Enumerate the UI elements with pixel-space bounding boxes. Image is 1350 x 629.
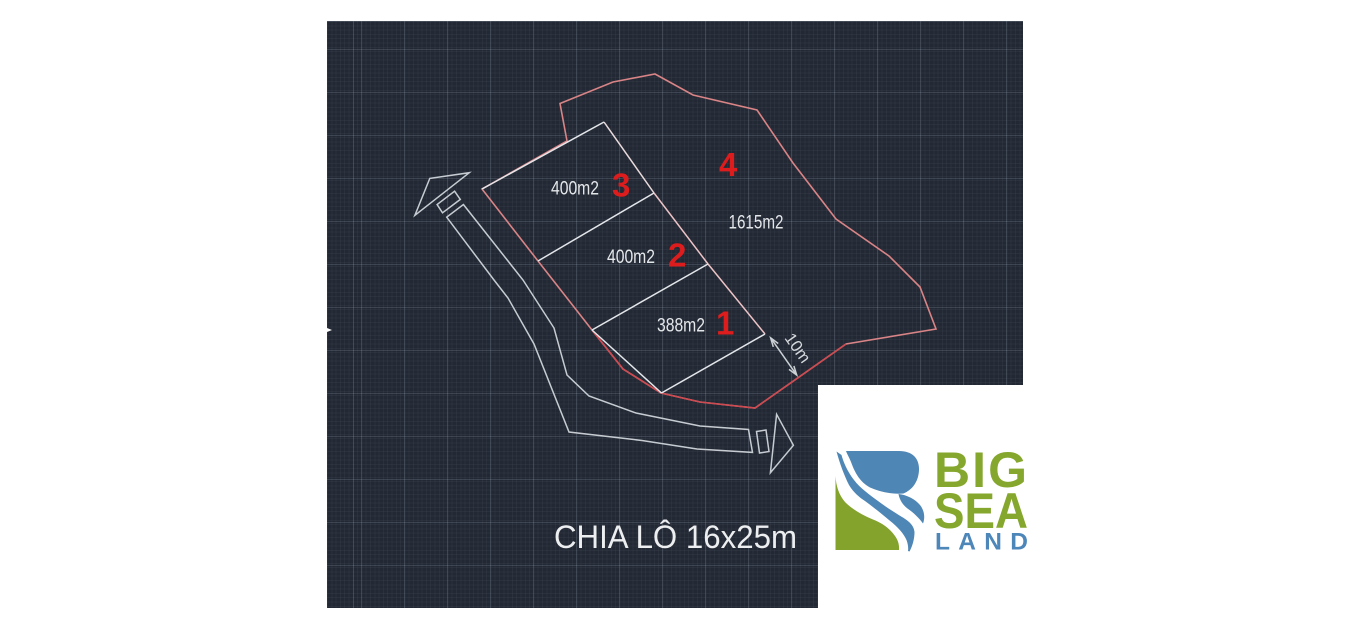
svg-text:10m: 10m <box>781 330 814 367</box>
svg-text:400m2: 400m2 <box>607 247 655 268</box>
svg-text:4: 4 <box>719 146 738 183</box>
svg-text:1615m2: 1615m2 <box>729 213 784 234</box>
svg-text:CHIA LÔ 16x25m: CHIA LÔ 16x25m <box>554 519 797 555</box>
svg-text:388m2: 388m2 <box>657 316 705 337</box>
svg-text:400m2: 400m2 <box>551 179 599 200</box>
svg-text:1: 1 <box>716 305 734 342</box>
svg-text:3: 3 <box>612 167 630 204</box>
svg-text:2: 2 <box>668 237 686 274</box>
